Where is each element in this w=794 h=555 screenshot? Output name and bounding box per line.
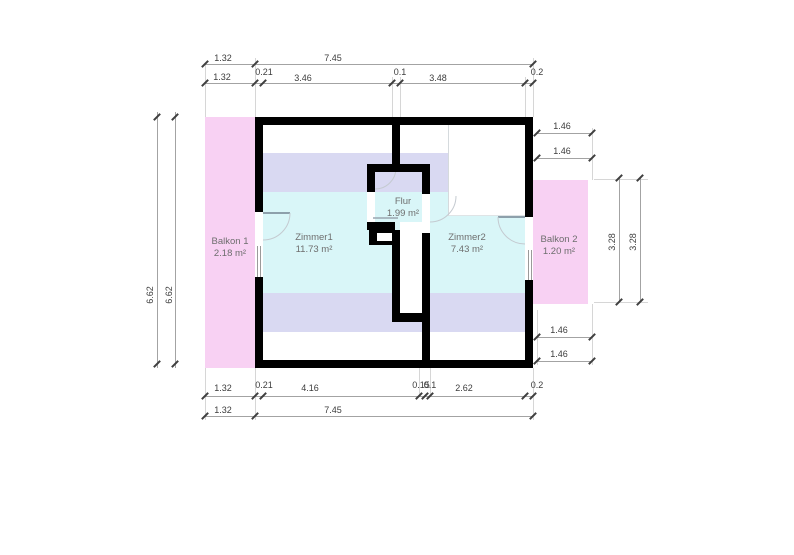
wall-exterior-right-upper	[525, 117, 533, 217]
wall-flur-left	[367, 172, 375, 192]
flur-door-opening-right	[422, 194, 430, 233]
dim-right-bottom-2: 1.46	[550, 349, 568, 359]
dim-right-bottom-1: 1.46	[550, 325, 568, 335]
wall-stair-left	[392, 230, 400, 322]
dim-top-inner-wall-right: 0.2	[531, 67, 544, 77]
zimmer1-window-glazing	[258, 246, 261, 277]
dim-line-left-outer	[157, 112, 158, 368]
zimmer1-name: Zimmer1	[295, 232, 332, 244]
dim-right-top-2: 1.46	[553, 146, 571, 156]
balkon1-label: Balkon 1 2.18 m²	[212, 236, 249, 260]
dim-right-middle-1: 3.28	[607, 233, 617, 251]
dim-line-right-top-2	[537, 158, 592, 159]
balkon2-label: Balkon 2 1.20 m²	[541, 234, 578, 258]
dim-right-top-1: 1.46	[553, 121, 571, 131]
dim-bottom-inner-wall-left: 0.21	[255, 380, 273, 390]
dim-bottom-outer-balkon: 1.32	[214, 405, 232, 415]
dim-top-inner-balkon: 1.32	[213, 72, 231, 82]
zimmer1-label: Zimmer1 11.73 m²	[295, 232, 332, 256]
dim-line-right-bottom-2	[537, 361, 592, 362]
dim-bottom-inner-balkon: 1.32	[214, 383, 232, 393]
flur-area-value: 1.99 m²	[387, 208, 419, 220]
dim-bottom-inner-stair-b: 0.1	[424, 380, 437, 390]
wall-exterior-right-lower	[525, 280, 533, 368]
balkon1-area-value: 2.18 m²	[212, 248, 249, 260]
dim-line-right-mid-1	[619, 178, 620, 302]
wall-step	[367, 222, 395, 230]
dim-top-inner-partition: 0.1	[394, 67, 407, 77]
dim-bottom-inner-zimmer1: 4.16	[301, 383, 319, 393]
dim-top-inner-zimmer2: 3.48	[429, 73, 447, 83]
dim-bottom-outer-total: 7.45	[324, 405, 342, 415]
dim-line-left-inner	[175, 112, 176, 368]
wall-exterior-bottom	[255, 360, 533, 368]
zimmer2-area-value: 7.43 m²	[448, 244, 485, 256]
dim-line-right-top-1	[537, 133, 592, 134]
zimmer2-label: Zimmer2 7.43 m²	[448, 232, 485, 256]
zimmer1-area-value: 11.73 m²	[295, 244, 332, 256]
wall-flur-top	[367, 164, 430, 172]
wall-exterior-left-lower	[255, 277, 263, 368]
wall-flur-right	[422, 172, 430, 194]
floor-plan: Balkon 1 2.18 m² Zimmer1 11.73 m² Flur 1…	[0, 0, 794, 555]
dim-top-inner-zimmer1: 3.46	[294, 73, 312, 83]
zimmer2-window-glazing	[529, 250, 532, 280]
dim-line-right-mid-2	[640, 178, 641, 302]
dim-left-inner: 6.62	[164, 286, 174, 304]
flur-door-opening-left	[367, 192, 375, 222]
dim-top-outer-balkon: 1.32	[214, 53, 232, 63]
balkon1-name: Balkon 1	[212, 236, 249, 248]
dim-bottom-inner-zimmer2: 2.62	[455, 383, 473, 393]
dim-bottom-inner-wall-right: 0.2	[531, 380, 544, 390]
flur-label: Flur 1.99 m²	[387, 196, 419, 220]
extension-line	[205, 64, 206, 117]
stairwell-void	[400, 222, 422, 313]
chimney-flue	[377, 233, 392, 241]
wall-partition-stub	[392, 117, 400, 164]
dim-line-right-bottom-1	[537, 337, 592, 338]
wall-stair-bottom	[392, 313, 430, 322]
balkon2-area-value: 1.20 m²	[541, 246, 578, 258]
balkon2-name: Balkon 2	[541, 234, 578, 246]
dim-right-middle-2: 3.28	[628, 233, 638, 251]
zimmer2-name: Zimmer2	[448, 232, 485, 244]
wall-stair-right	[422, 233, 430, 368]
dim-top-outer-total: 7.45	[324, 53, 342, 63]
flur-name: Flur	[387, 196, 419, 208]
dormer-area	[448, 122, 526, 216]
dim-top-inner-wall-left: 0.21	[255, 67, 273, 77]
dim-left-outer: 6.62	[145, 286, 155, 304]
wall-exterior-left-upper	[255, 117, 263, 212]
